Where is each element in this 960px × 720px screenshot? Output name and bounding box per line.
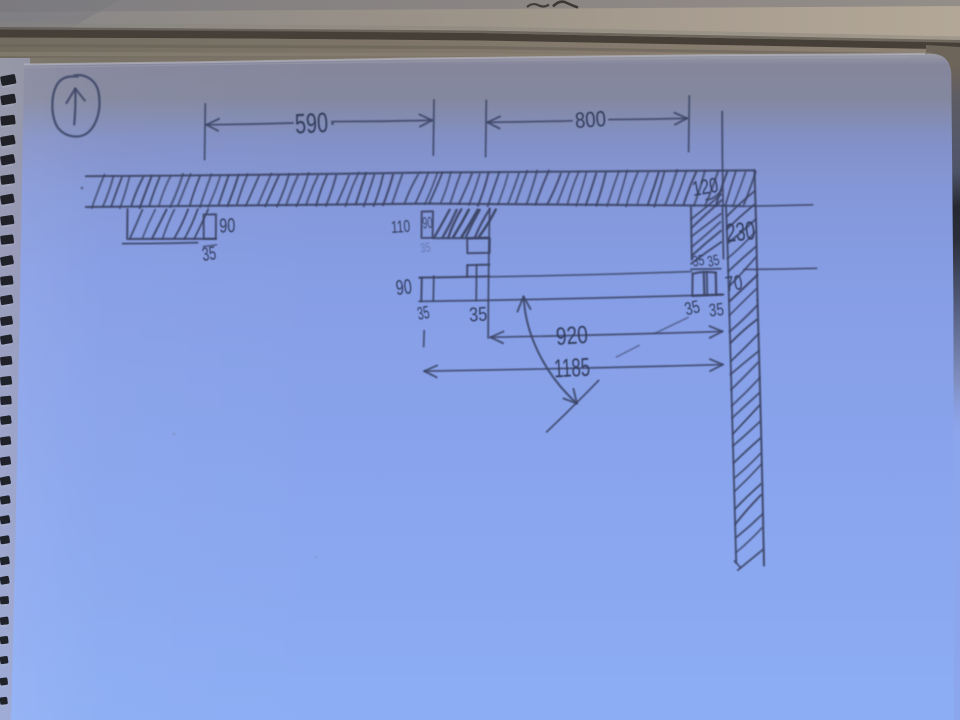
svg-text:90: 90 — [395, 275, 413, 300]
svg-text:35: 35 — [469, 304, 488, 327]
svg-text:90: 90 — [219, 215, 236, 238]
svg-text:35: 35 — [691, 252, 705, 271]
svg-text:590: 590 — [294, 107, 329, 140]
svg-text:35: 35 — [708, 299, 725, 320]
svg-text:1185: 1185 — [553, 352, 591, 384]
svg-text:110: 110 — [390, 217, 410, 237]
svg-text:35: 35 — [420, 240, 432, 256]
svg-text:90: 90 — [422, 215, 434, 233]
svg-text:920: 920 — [555, 321, 589, 351]
svg-text:230: 230 — [724, 215, 756, 248]
svg-text:800: 800 — [574, 106, 607, 133]
